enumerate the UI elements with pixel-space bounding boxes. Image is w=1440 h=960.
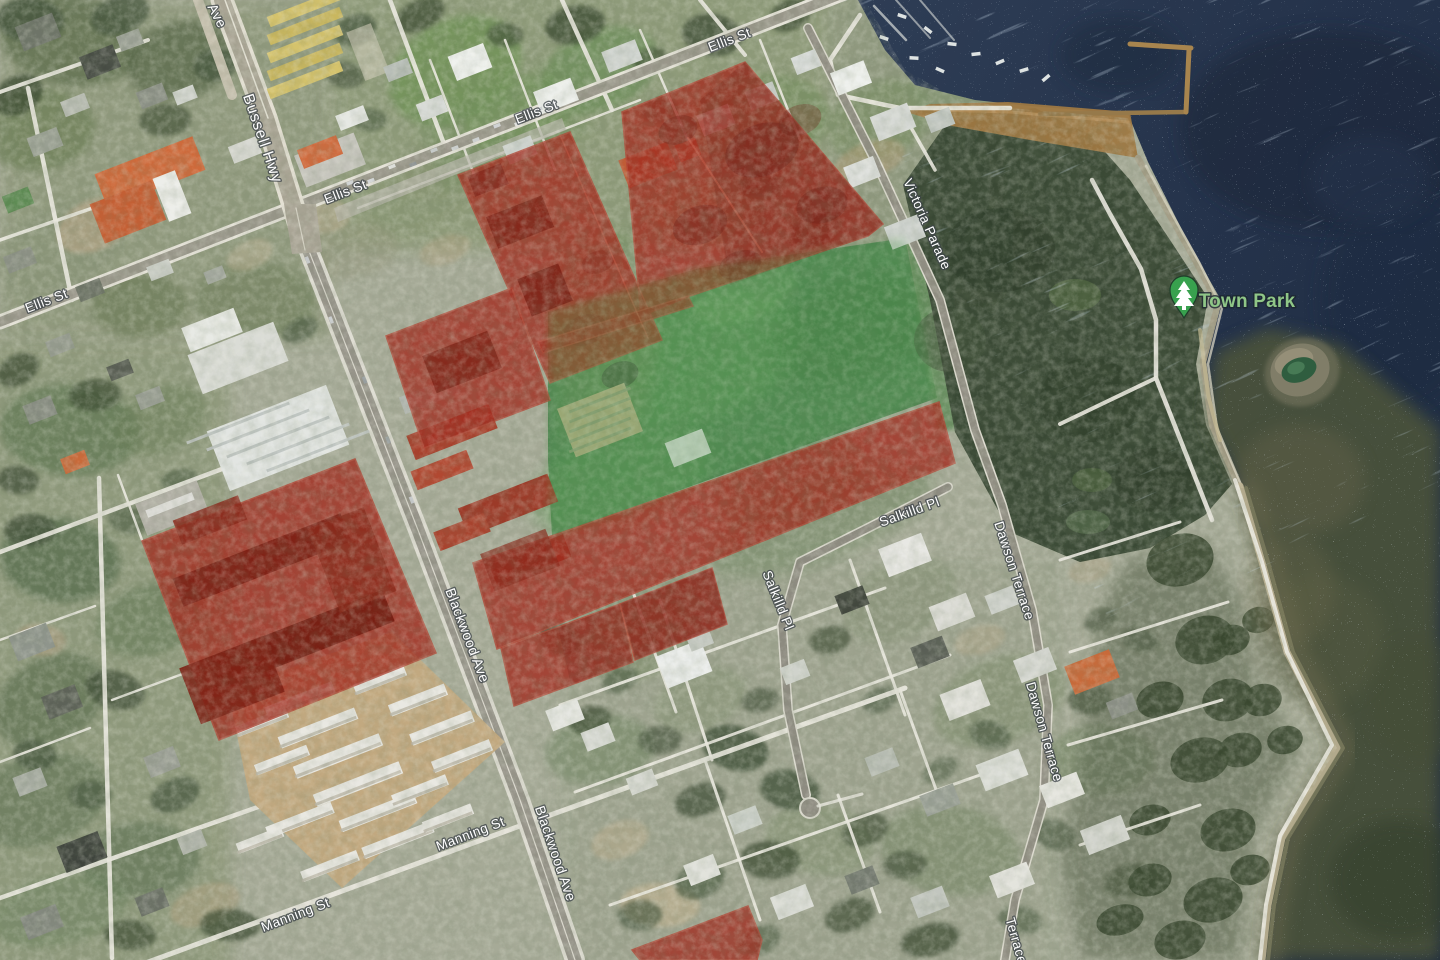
svg-text:Town Park: Town Park — [1199, 291, 1296, 312]
